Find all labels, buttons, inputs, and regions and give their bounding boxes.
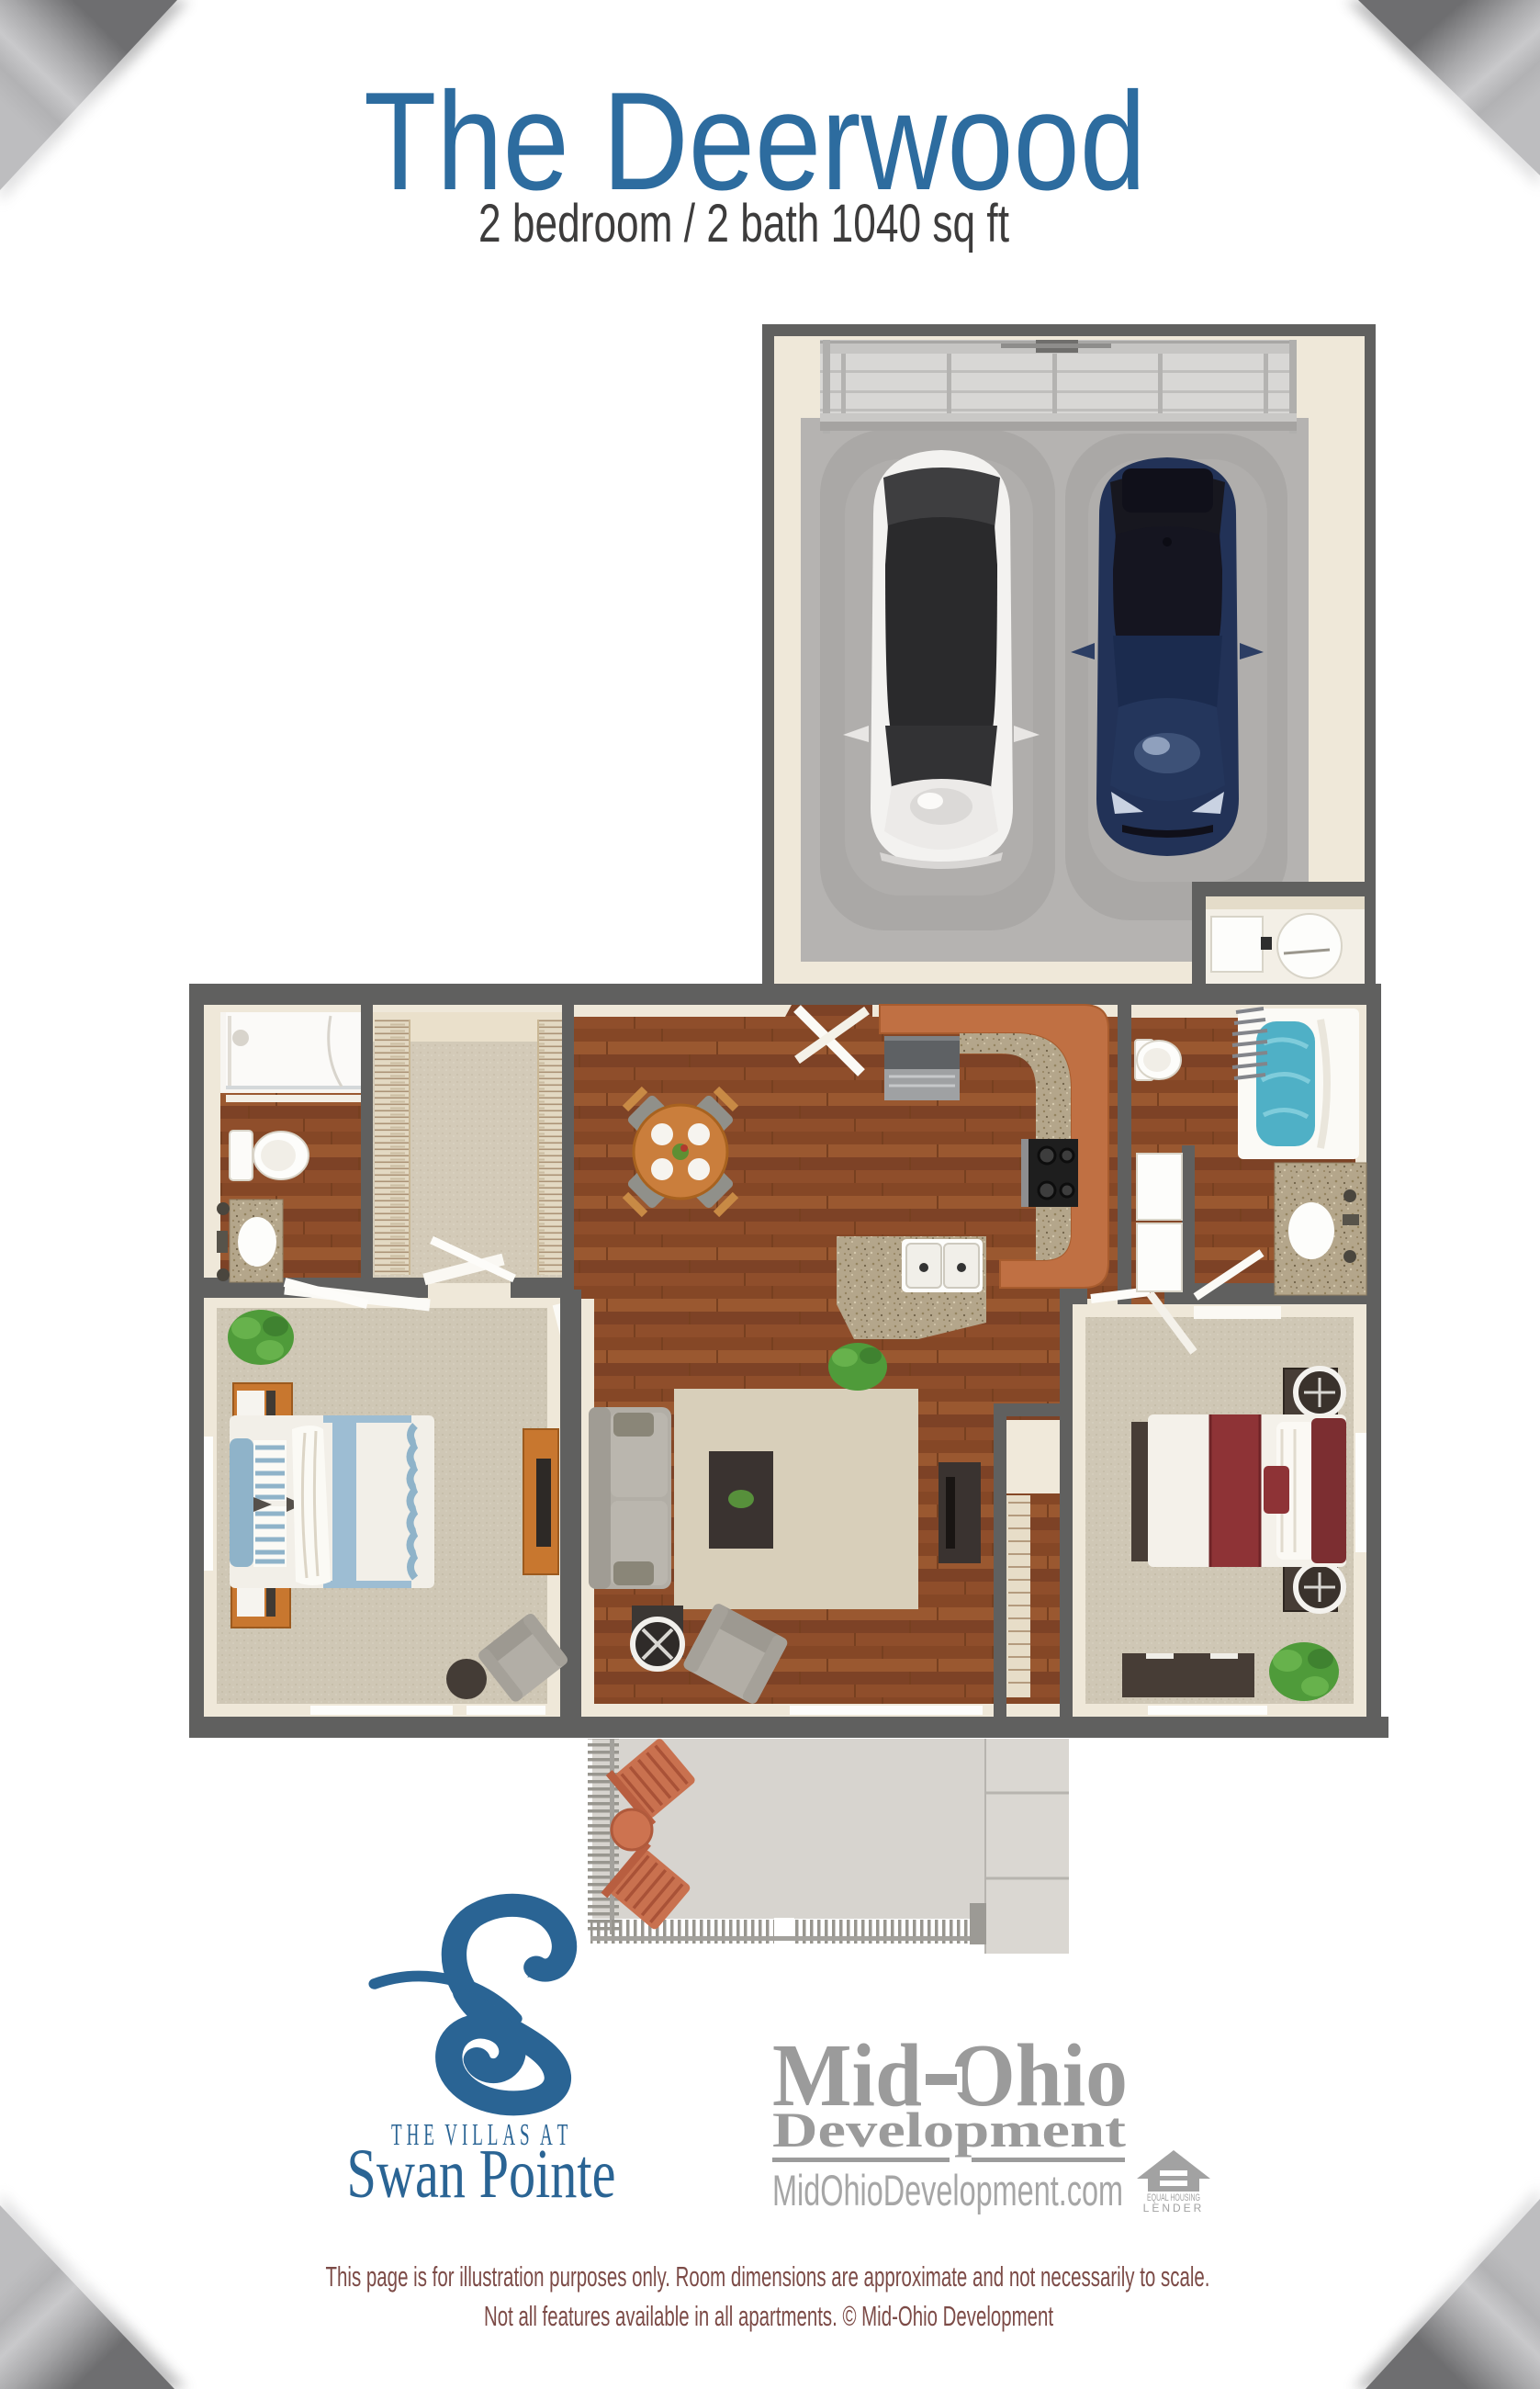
svg-text:Swan Pointe: Swan Pointe	[347, 2135, 616, 2213]
svg-text:MidOhioDevelopment.com: MidOhioDevelopment.com	[772, 2166, 1123, 2214]
svg-text:Development: Development	[772, 2102, 1126, 2158]
svg-text:Not all features available in: Not all features available in all apartm…	[484, 2300, 1053, 2332]
svg-text:2 bedroom / 2 bath 1040 sq ft: 2 bedroom / 2 bath 1040 sq ft	[478, 194, 1009, 254]
svg-text:This page is for illustration: This page is for illustration purposes o…	[326, 2260, 1210, 2293]
svg-text:LENDER: LENDER	[1143, 2202, 1205, 2214]
